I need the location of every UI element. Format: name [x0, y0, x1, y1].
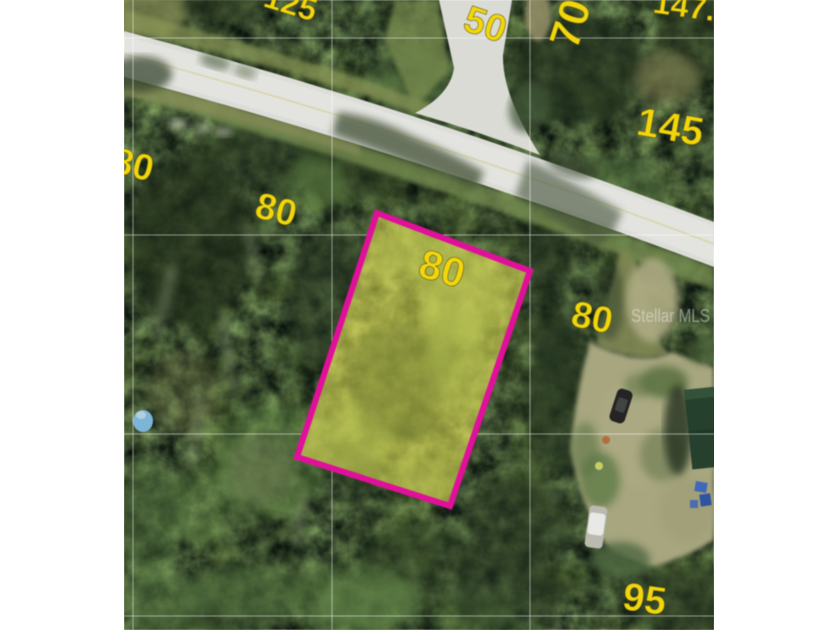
svg-text:80: 80 [568, 293, 617, 342]
svg-text:Stellar MLS: Stellar MLS [631, 306, 710, 326]
svg-text:95: 95 [620, 575, 669, 624]
